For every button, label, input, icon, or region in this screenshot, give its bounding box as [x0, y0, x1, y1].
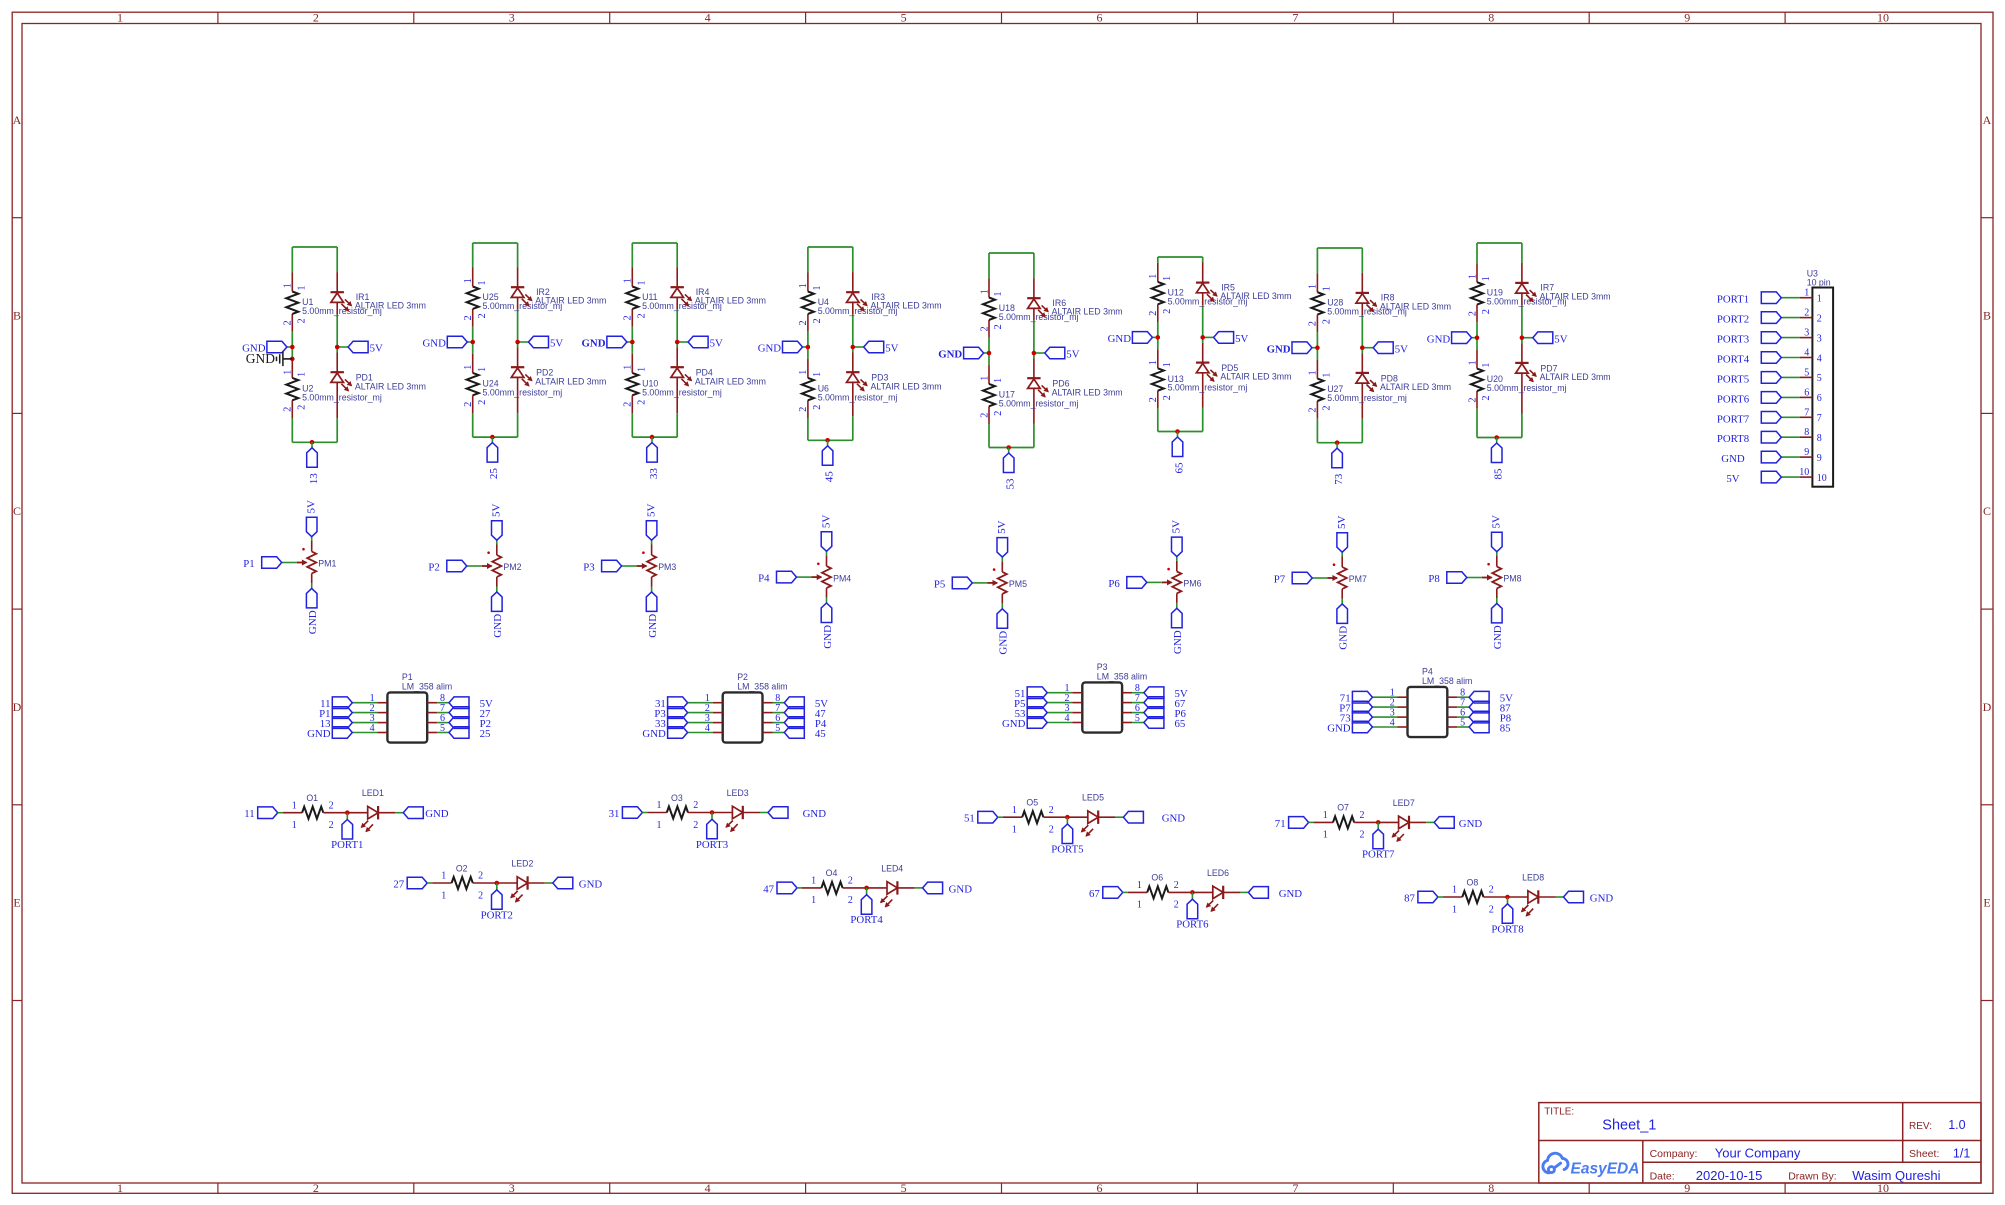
svg-text:3: 3	[509, 1181, 515, 1195]
svg-text:LM_358 alim: LM_358 alim	[1422, 676, 1472, 686]
svg-text:4: 4	[1065, 713, 1070, 724]
svg-text:1: 1	[1452, 904, 1457, 915]
svg-text:45: 45	[823, 471, 835, 483]
svg-text:PORT2: PORT2	[481, 909, 513, 921]
svg-text:1: 1	[1322, 286, 1333, 291]
svg-text:LED2: LED2	[511, 859, 533, 869]
svg-text:GND: GND	[246, 351, 275, 366]
svg-text:Company:: Company:	[1650, 1148, 1698, 1160]
svg-text:5.00mm_resistor_mj: 5.00mm_resistor_mj	[999, 398, 1079, 408]
svg-text:O6: O6	[1151, 873, 1163, 883]
svg-text:PM5: PM5	[1009, 579, 1027, 589]
svg-text:2: 2	[1467, 311, 1478, 316]
svg-text:1: 1	[1452, 885, 1457, 896]
svg-text:PORT5: PORT5	[1717, 373, 1749, 385]
svg-text:GND: GND	[647, 614, 659, 638]
svg-text:85: 85	[1493, 468, 1505, 480]
svg-text:2: 2	[1162, 309, 1173, 314]
svg-text:PORT8: PORT8	[1491, 923, 1523, 935]
svg-text:C: C	[13, 504, 21, 518]
svg-text:5.00mm_resistor_mj: 5.00mm_resistor_mj	[483, 387, 563, 397]
svg-text:PORT4: PORT4	[1717, 354, 1750, 366]
svg-text:PORT3: PORT3	[1717, 334, 1749, 346]
svg-text:ALTAIR LED 3mm: ALTAIR LED 3mm	[1220, 372, 1291, 382]
svg-text:5: 5	[775, 723, 780, 734]
svg-text:GND: GND	[1459, 818, 1483, 830]
svg-text:5V: 5V	[1235, 333, 1248, 345]
svg-text:P6: P6	[1108, 578, 1120, 590]
svg-text:1: 1	[636, 281, 647, 286]
svg-text:Sheet_1: Sheet_1	[1602, 1118, 1656, 1134]
svg-text:GND: GND	[1172, 630, 1184, 654]
svg-text:2: 2	[296, 318, 307, 323]
svg-text:PORT7: PORT7	[1362, 849, 1395, 861]
svg-text:2: 2	[1360, 830, 1365, 841]
svg-text:ALTAIR LED 3mm: ALTAIR LED 3mm	[1052, 307, 1123, 317]
svg-text:GND: GND	[425, 808, 449, 820]
svg-text:GND: GND	[492, 614, 504, 638]
svg-text:GND: GND	[1590, 892, 1614, 904]
svg-text:10: 10	[1799, 467, 1809, 478]
svg-text:1: 1	[1322, 373, 1333, 378]
svg-text:GND: GND	[1721, 453, 1745, 465]
svg-text:5: 5	[901, 10, 907, 24]
svg-text:GND: GND	[998, 631, 1010, 655]
svg-text:REV:: REV:	[1909, 1121, 1932, 1132]
svg-text:87: 87	[1404, 892, 1415, 904]
svg-text:PORT3: PORT3	[696, 839, 728, 851]
svg-text:1: 1	[1308, 370, 1319, 375]
svg-text:5: 5	[1804, 367, 1809, 378]
svg-text:9: 9	[1684, 10, 1690, 24]
svg-text:8: 8	[1817, 433, 1822, 444]
svg-text:PM7: PM7	[1349, 574, 1367, 584]
svg-text:2: 2	[1308, 408, 1319, 413]
svg-text:8: 8	[1804, 427, 1809, 438]
svg-text:2020-10-15: 2020-10-15	[1696, 1168, 1763, 1183]
svg-text:2: 2	[848, 876, 853, 887]
svg-text:47: 47	[763, 883, 774, 895]
svg-text:5V: 5V	[1554, 333, 1567, 345]
svg-text:1.0: 1.0	[1948, 1118, 1965, 1132]
svg-text:ALTAIR LED 3mm: ALTAIR LED 3mm	[871, 301, 942, 311]
svg-text:2: 2	[283, 407, 294, 412]
svg-text:1: 1	[1481, 363, 1492, 368]
svg-text:LM_358 alim: LM_358 alim	[402, 681, 452, 691]
svg-text:4: 4	[1817, 353, 1822, 364]
svg-text:GND: GND	[803, 808, 827, 820]
svg-text:D: D	[1983, 700, 1992, 714]
svg-text:LED3: LED3	[727, 788, 749, 798]
svg-text:1: 1	[979, 289, 990, 294]
svg-text:GND: GND	[1002, 718, 1026, 730]
svg-text:Your Company: Your Company	[1715, 1145, 1801, 1160]
svg-text:ALTAIR LED 3mm: ALTAIR LED 3mm	[1380, 301, 1451, 311]
svg-text:LED8: LED8	[1522, 873, 1544, 883]
svg-text:E: E	[1983, 896, 1990, 910]
svg-text:1: 1	[1148, 360, 1159, 365]
svg-text:85: 85	[1500, 722, 1511, 734]
svg-text:9: 9	[1804, 447, 1809, 458]
svg-text:P2: P2	[428, 561, 439, 573]
svg-text:1: 1	[657, 800, 662, 811]
svg-text:1: 1	[441, 871, 446, 882]
svg-text:2: 2	[1817, 313, 1822, 324]
svg-text:2: 2	[1308, 321, 1319, 326]
svg-text:1: 1	[296, 286, 307, 291]
svg-text:5V: 5V	[1491, 515, 1503, 529]
svg-text:2: 2	[1489, 904, 1494, 915]
svg-text:1: 1	[117, 1181, 123, 1195]
svg-text:65: 65	[1175, 718, 1186, 730]
svg-text:GND: GND	[1327, 722, 1351, 734]
svg-text:2: 2	[1049, 805, 1054, 816]
svg-text:2: 2	[1148, 311, 1159, 316]
svg-text:B: B	[1983, 309, 1991, 323]
svg-text:ALTAIR LED 3mm: ALTAIR LED 3mm	[1220, 291, 1291, 301]
svg-text:5V: 5V	[1336, 516, 1348, 530]
svg-text:2: 2	[812, 405, 823, 410]
svg-text:ALTAIR LED 3mm: ALTAIR LED 3mm	[355, 381, 426, 391]
svg-text:2: 2	[812, 318, 823, 323]
svg-text:1: 1	[283, 370, 294, 375]
svg-text:PM8: PM8	[1503, 574, 1521, 584]
svg-text:P1: P1	[243, 558, 254, 570]
svg-text:1: 1	[993, 378, 1004, 383]
svg-text:5V: 5V	[996, 520, 1008, 534]
svg-text:10: 10	[1817, 473, 1827, 484]
svg-text:1: 1	[1162, 276, 1173, 281]
svg-text:2: 2	[1174, 880, 1179, 891]
svg-text:2: 2	[283, 320, 294, 325]
svg-text:2: 2	[463, 315, 474, 320]
svg-text:5.00mm_resistor_mj: 5.00mm_resistor_mj	[1327, 393, 1407, 403]
svg-text:2: 2	[463, 402, 474, 407]
svg-text:GND: GND	[1492, 625, 1504, 649]
svg-text:1: 1	[1804, 288, 1809, 299]
svg-text:PM6: PM6	[1183, 579, 1201, 589]
svg-text:1: 1	[623, 365, 634, 370]
svg-text:8: 8	[1488, 10, 1494, 24]
svg-text:2: 2	[693, 820, 698, 831]
svg-text:GND: GND	[422, 338, 446, 350]
svg-text:1: 1	[1323, 810, 1328, 821]
svg-text:1: 1	[292, 820, 297, 831]
svg-text:1: 1	[463, 278, 474, 283]
svg-text:1: 1	[117, 10, 123, 24]
svg-text:2: 2	[1162, 395, 1173, 400]
svg-text:PORT1: PORT1	[331, 839, 363, 851]
svg-text:1: 1	[441, 890, 446, 901]
svg-text:GND: GND	[949, 883, 973, 895]
svg-text:O5: O5	[1026, 798, 1038, 808]
svg-text:1/1: 1/1	[1953, 1146, 1970, 1160]
svg-text:GND: GND	[307, 728, 331, 740]
svg-text:2: 2	[993, 411, 1004, 416]
svg-text:13: 13	[308, 473, 320, 485]
svg-text:EasyEDA: EasyEDA	[1571, 1161, 1640, 1178]
svg-text:ALTAIR LED 3mm: ALTAIR LED 3mm	[535, 296, 606, 306]
svg-text:7: 7	[1292, 1181, 1298, 1195]
svg-text:P4: P4	[758, 573, 770, 585]
svg-text:GND: GND	[1267, 343, 1291, 355]
svg-text:4: 4	[705, 1181, 711, 1195]
svg-text:5.00mm_resistor_mj: 5.00mm_resistor_mj	[1168, 383, 1248, 393]
svg-text:LED5: LED5	[1082, 793, 1104, 803]
svg-text:5V: 5V	[370, 343, 383, 355]
svg-text:GND: GND	[307, 610, 319, 634]
svg-text:2: 2	[1360, 810, 1365, 821]
svg-text:1: 1	[1817, 294, 1822, 305]
svg-text:2: 2	[1481, 396, 1492, 401]
svg-text:1: 1	[1137, 900, 1142, 911]
svg-text:6: 6	[1097, 1181, 1103, 1195]
svg-text:5.00mm_resistor_mj: 5.00mm_resistor_mj	[302, 392, 382, 402]
svg-text:67: 67	[1089, 888, 1100, 900]
svg-text:GND: GND	[1338, 626, 1350, 650]
svg-text:4: 4	[1804, 348, 1809, 359]
svg-text:73: 73	[1333, 473, 1345, 485]
svg-text:5V: 5V	[1171, 520, 1183, 534]
svg-text:2: 2	[1467, 398, 1478, 403]
svg-text:LED4: LED4	[881, 863, 903, 873]
svg-text:ALTAIR LED 3mm: ALTAIR LED 3mm	[1540, 291, 1611, 301]
svg-text:7: 7	[1292, 10, 1298, 24]
svg-text:O3: O3	[671, 793, 683, 803]
svg-text:1: 1	[1012, 805, 1017, 816]
svg-text:Date:: Date:	[1650, 1171, 1675, 1183]
svg-text:1: 1	[283, 283, 294, 288]
svg-text:ALTAIR LED 3mm: ALTAIR LED 3mm	[871, 381, 942, 391]
svg-text:11: 11	[244, 808, 254, 820]
svg-text:6: 6	[1097, 10, 1103, 24]
svg-text:7: 7	[1817, 413, 1822, 424]
svg-text:LED7: LED7	[1393, 798, 1415, 808]
svg-text:25: 25	[488, 468, 500, 480]
svg-text:2: 2	[979, 326, 990, 331]
svg-text:1: 1	[1137, 880, 1142, 891]
svg-text:P7: P7	[1274, 573, 1286, 585]
svg-text:C: C	[1983, 504, 1991, 518]
svg-text:2: 2	[477, 313, 488, 318]
svg-text:9: 9	[1817, 453, 1822, 464]
svg-text:2: 2	[798, 320, 809, 325]
svg-text:2: 2	[798, 407, 809, 412]
svg-text:2: 2	[623, 402, 634, 407]
svg-text:2: 2	[313, 1181, 319, 1195]
svg-text:1: 1	[477, 367, 488, 372]
svg-text:53: 53	[1005, 478, 1017, 490]
svg-text:A: A	[1983, 113, 1992, 127]
svg-text:TITLE:: TITLE:	[1544, 1107, 1574, 1118]
svg-text:2: 2	[636, 400, 647, 405]
svg-text:1: 1	[1162, 362, 1173, 367]
svg-text:2: 2	[848, 895, 853, 906]
svg-text:1: 1	[463, 365, 474, 370]
svg-text:LED1: LED1	[362, 788, 384, 798]
svg-text:GND: GND	[1162, 813, 1186, 825]
svg-text:ALTAIR LED 3mm: ALTAIR LED 3mm	[1052, 387, 1123, 397]
svg-text:25: 25	[480, 728, 491, 740]
svg-text:1: 1	[1148, 274, 1159, 279]
svg-text:O8: O8	[1467, 877, 1479, 887]
svg-text:5V: 5V	[645, 504, 657, 518]
svg-text:GND: GND	[822, 625, 834, 649]
svg-text:GND: GND	[642, 728, 666, 740]
svg-text:5: 5	[1460, 718, 1465, 729]
svg-text:GND: GND	[1279, 888, 1303, 900]
svg-text:3: 3	[1817, 333, 1822, 344]
svg-text:5V: 5V	[885, 343, 898, 355]
svg-text:31: 31	[609, 808, 620, 820]
svg-text:33: 33	[648, 468, 660, 480]
svg-text:O1: O1	[306, 793, 318, 803]
svg-text:2: 2	[329, 800, 334, 811]
svg-text:GND: GND	[1108, 333, 1132, 345]
svg-text:PORT6: PORT6	[1717, 393, 1750, 405]
svg-text:ALTAIR LED 3mm: ALTAIR LED 3mm	[695, 296, 766, 306]
svg-text:1: 1	[1012, 825, 1017, 836]
svg-text:71: 71	[1275, 818, 1286, 830]
svg-text:6: 6	[1804, 387, 1809, 398]
svg-text:2: 2	[1322, 406, 1333, 411]
svg-text:P5: P5	[934, 578, 945, 590]
svg-text:E: E	[13, 896, 20, 910]
svg-text:4: 4	[705, 723, 710, 734]
svg-text:1: 1	[798, 283, 809, 288]
svg-text:GND: GND	[582, 338, 606, 350]
svg-text:2: 2	[1322, 319, 1333, 324]
svg-text:2: 2	[296, 405, 307, 410]
svg-text:27: 27	[393, 878, 404, 890]
svg-text:PORT8: PORT8	[1717, 433, 1749, 445]
svg-text:5: 5	[901, 1181, 907, 1195]
svg-text:2: 2	[636, 313, 647, 318]
svg-text:Wasim Qureshi: Wasim Qureshi	[1852, 1168, 1940, 1183]
svg-text:PM4: PM4	[833, 573, 851, 583]
svg-text:GND: GND	[758, 343, 782, 355]
svg-text:2: 2	[993, 324, 1004, 329]
svg-text:10: 10	[1877, 10, 1889, 24]
svg-text:2: 2	[313, 10, 319, 24]
svg-text:2: 2	[478, 871, 483, 882]
svg-text:45: 45	[815, 728, 826, 740]
svg-text:ALTAIR LED 3mm: ALTAIR LED 3mm	[1540, 372, 1611, 382]
svg-text:P3: P3	[583, 561, 594, 573]
svg-text:PM3: PM3	[658, 562, 676, 572]
svg-text:2: 2	[623, 315, 634, 320]
svg-text:1: 1	[1481, 276, 1492, 281]
svg-text:2: 2	[1481, 309, 1492, 314]
svg-text:LM_358 alim: LM_358 alim	[1097, 671, 1147, 681]
svg-text:2: 2	[478, 890, 483, 901]
svg-text:5: 5	[1135, 713, 1140, 724]
svg-text:1: 1	[979, 376, 990, 381]
svg-text:5V: 5V	[1726, 473, 1739, 485]
svg-text:2: 2	[1489, 885, 1494, 896]
svg-text:O4: O4	[826, 868, 838, 878]
svg-text:1: 1	[993, 292, 1004, 297]
svg-text:7: 7	[1804, 407, 1809, 418]
svg-text:8: 8	[1488, 1181, 1494, 1195]
svg-text:2: 2	[477, 400, 488, 405]
svg-text:GND: GND	[1427, 333, 1451, 345]
svg-text:6: 6	[1817, 393, 1822, 404]
svg-text:5V: 5V	[710, 338, 723, 350]
svg-text:10 pin: 10 pin	[1807, 277, 1831, 287]
svg-text:O2: O2	[456, 863, 468, 873]
svg-text:PORT6: PORT6	[1176, 919, 1209, 931]
svg-text:PM2: PM2	[503, 562, 521, 572]
svg-text:2: 2	[1804, 308, 1809, 319]
svg-text:P8: P8	[1428, 573, 1439, 585]
svg-text:LED6: LED6	[1207, 868, 1229, 878]
svg-text:PORT4: PORT4	[850, 914, 883, 926]
svg-text:1: 1	[1308, 284, 1319, 289]
svg-text:B: B	[13, 309, 21, 323]
svg-text:1: 1	[812, 372, 823, 377]
svg-text:4: 4	[1390, 718, 1395, 729]
svg-text:Sheet:: Sheet:	[1909, 1148, 1939, 1160]
svg-text:1: 1	[636, 367, 647, 372]
svg-text:2: 2	[693, 800, 698, 811]
svg-text:4: 4	[705, 10, 711, 24]
svg-text:5V: 5V	[306, 500, 318, 514]
svg-text:5.00mm_resistor_mj: 5.00mm_resistor_mj	[818, 392, 898, 402]
svg-text:GND: GND	[579, 878, 603, 890]
svg-text:GND: GND	[938, 349, 962, 361]
svg-text:1: 1	[477, 281, 488, 286]
svg-text:1: 1	[657, 820, 662, 831]
svg-text:D: D	[13, 700, 22, 714]
svg-text:1: 1	[798, 370, 809, 375]
svg-text:ALTAIR LED 3mm: ALTAIR LED 3mm	[355, 301, 426, 311]
svg-text:2: 2	[1174, 900, 1179, 911]
svg-text:ALTAIR LED 3mm: ALTAIR LED 3mm	[535, 376, 606, 386]
svg-text:3: 3	[1804, 328, 1809, 339]
svg-text:5V: 5V	[820, 515, 832, 529]
svg-text:LM_358 alim: LM_358 alim	[737, 681, 787, 691]
svg-text:A: A	[13, 113, 22, 127]
svg-text:Drawn By:: Drawn By:	[1788, 1171, 1836, 1183]
svg-text:5.00mm_resistor_mj: 5.00mm_resistor_mj	[1487, 383, 1567, 393]
svg-text:ALTAIR LED 3mm: ALTAIR LED 3mm	[695, 376, 766, 386]
svg-text:5: 5	[440, 723, 445, 734]
svg-text:PORT5: PORT5	[1051, 844, 1083, 856]
svg-text:5V: 5V	[1066, 349, 1079, 361]
svg-text:PORT2: PORT2	[1717, 314, 1749, 326]
svg-text:65: 65	[1173, 462, 1185, 474]
svg-text:1: 1	[623, 278, 634, 283]
svg-text:5V: 5V	[491, 504, 503, 518]
svg-text:1: 1	[1323, 830, 1328, 841]
svg-text:ALTAIR LED 3mm: ALTAIR LED 3mm	[1380, 382, 1451, 392]
svg-text:1: 1	[1467, 360, 1478, 365]
svg-text:PORT1: PORT1	[1717, 294, 1749, 306]
svg-text:5: 5	[1817, 373, 1822, 384]
svg-text:2: 2	[1049, 825, 1054, 836]
svg-text:PORT7: PORT7	[1717, 413, 1750, 425]
svg-text:PM1: PM1	[318, 559, 336, 569]
svg-text:1: 1	[1467, 274, 1478, 279]
svg-text:5V: 5V	[550, 338, 563, 350]
svg-text:1: 1	[296, 372, 307, 377]
svg-text:4: 4	[370, 723, 375, 734]
svg-text:O7: O7	[1337, 803, 1349, 813]
svg-text:1: 1	[292, 800, 297, 811]
svg-text:2: 2	[329, 820, 334, 831]
svg-text:1: 1	[811, 876, 816, 887]
